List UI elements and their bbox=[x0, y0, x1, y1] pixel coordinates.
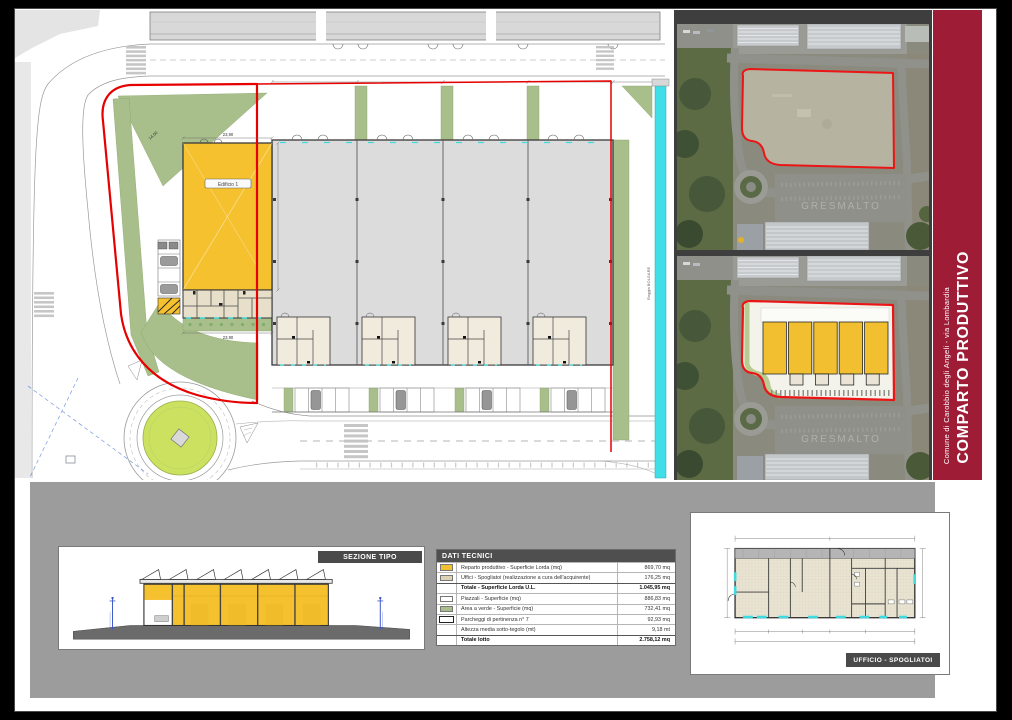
dati-row-label: Altezza media sotto-tegolo (mt) bbox=[457, 625, 617, 634]
canal-label: Roggia BOLGARE bbox=[646, 267, 651, 300]
color-swatch-icon bbox=[440, 596, 453, 603]
car-icon bbox=[567, 391, 577, 410]
dati-tecnici-rows: Reparto produttivo - Superficie Lorda (m… bbox=[437, 562, 675, 645]
dati-row-label: Parcheggi di pertinenza n° 7 bbox=[457, 615, 617, 624]
legend-swatch-cell bbox=[437, 605, 457, 614]
dim-top: 23,90 bbox=[223, 132, 234, 137]
building-label: Edificio 1 bbox=[218, 182, 239, 188]
dati-tecnici-header: DATI TECNICI bbox=[437, 550, 675, 562]
aerial-photo-project: GRESMALTO bbox=[677, 256, 929, 480]
ground-text: GRESMALTO bbox=[801, 201, 881, 212]
industrial-roofs bbox=[737, 24, 929, 49]
legend-swatch-cell bbox=[437, 594, 457, 603]
drawing-sheet-page: Edificio 1 bbox=[0, 0, 1012, 720]
dati-row-value: 9,18 mt bbox=[617, 625, 675, 634]
dati-row-label: Uffici - Spogliatoi (realizzazione a cur… bbox=[457, 573, 617, 582]
dati-row-value: 869,70 mq bbox=[617, 563, 675, 572]
dati-row-value: 2.758,12 mq bbox=[617, 636, 675, 645]
dati-row-label: Piazzali - Superficie (mq) bbox=[457, 594, 617, 603]
lot-outline-existing bbox=[742, 69, 894, 168]
dati-row: Reparto produttivo - Superficie Lorda (m… bbox=[437, 562, 675, 572]
banner-subtitle: Comune di Carobbio degli Angeli - via Lo… bbox=[942, 287, 951, 464]
dati-row-value: 886,83 mq bbox=[617, 594, 675, 603]
site-plan-drawing: Edificio 1 bbox=[15, 10, 672, 480]
legend-swatch-cell bbox=[437, 625, 457, 634]
ground-text: GRESMALTO bbox=[801, 434, 881, 445]
car-icon bbox=[396, 391, 406, 410]
dati-row-label: Totale lotto bbox=[457, 636, 617, 645]
aerial-photo-existing: GRESMALTO bbox=[677, 24, 929, 250]
project-yellow-units bbox=[763, 322, 888, 374]
car-icon bbox=[311, 391, 321, 410]
dati-row: Area a verde - Superficie (mq)732,41 mq bbox=[437, 604, 675, 614]
aerial-photos-column: GRESMALTO bbox=[674, 10, 932, 480]
car-icon bbox=[482, 391, 492, 410]
legend-swatch-cell bbox=[437, 584, 457, 593]
west-parking-column bbox=[158, 240, 180, 314]
dati-row-value: 1.045,95 mq bbox=[617, 584, 675, 593]
dati-row: Totale lotto2.758,12 mq bbox=[437, 635, 675, 645]
color-swatch-icon bbox=[440, 606, 453, 613]
legend-swatch-cell bbox=[437, 636, 457, 645]
dati-row-value: 732,41 mq bbox=[617, 605, 675, 614]
color-swatch-icon bbox=[440, 575, 453, 582]
office-plan-panel: UFFICIO - SPOGLIATOI bbox=[690, 512, 950, 675]
car-icon bbox=[161, 257, 178, 266]
section-panel-label: SEZIONE TIPO bbox=[318, 551, 422, 563]
dati-row-value: 92,93 mq bbox=[617, 615, 675, 624]
dati-row: Totale - Superficie Lorda U.L.1.045,95 m… bbox=[437, 583, 675, 593]
yellow-building: Edificio 1 bbox=[183, 139, 272, 290]
office-strip bbox=[183, 290, 272, 318]
section-panel: SEZIONE TIPO bbox=[58, 546, 425, 650]
dati-row-label: Totale - Superficie Lorda U.L. bbox=[457, 584, 617, 593]
dati-row: Piazzali - Superficie (mq)886,83 mq bbox=[437, 593, 675, 603]
dim-bottom: 23,90 bbox=[223, 335, 234, 340]
sawtooth-roof bbox=[142, 570, 325, 580]
legend-swatch-cell bbox=[437, 573, 457, 582]
banner-title: COMPARTO PRODUTTIVO bbox=[955, 251, 973, 464]
parking-swatch-icon bbox=[439, 616, 454, 624]
dati-row-label: Area a verde - Superficie (mq) bbox=[457, 605, 617, 614]
dati-row: Uffici - Spogliatoi (realizzazione a cur… bbox=[437, 572, 675, 582]
dati-row: Altezza media sotto-tegolo (mt)9,18 mt bbox=[437, 624, 675, 634]
legend-swatch-cell bbox=[437, 563, 457, 572]
dati-tecnici-table: DATI TECNICI Reparto produttivo - Superf… bbox=[436, 549, 676, 646]
legend-swatch-cell bbox=[437, 615, 457, 624]
office-panel-label: UFFICIO - SPOGLIATOI bbox=[846, 653, 940, 667]
car-icon bbox=[161, 285, 178, 294]
title-banner: Comune di Carobbio degli Angeli - via Lo… bbox=[933, 10, 982, 480]
color-swatch-icon bbox=[440, 564, 453, 571]
site-plan: Edificio 1 bbox=[15, 10, 672, 480]
office-floor-plan bbox=[691, 513, 949, 674]
dati-row: Parcheggi di pertinenza n° 792,93 mq bbox=[437, 614, 675, 624]
dati-row-value: 176,25 mq bbox=[617, 573, 675, 582]
dati-row-label: Reparto produttivo - Superficie Lorda (m… bbox=[457, 563, 617, 572]
